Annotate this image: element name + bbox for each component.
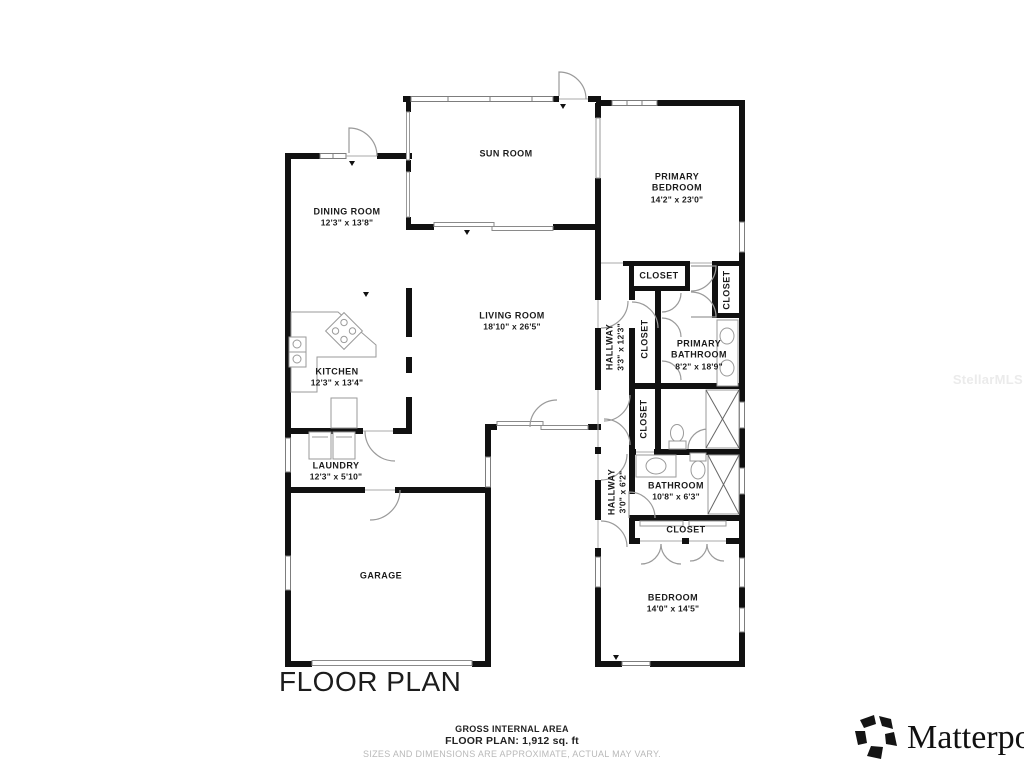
- matterport-wordmark: Matterport: [907, 719, 1024, 757]
- garage-entry-door-arc: [370, 490, 400, 520]
- dryer-icon: [333, 432, 355, 459]
- kitchen-island: [331, 398, 357, 428]
- page-title: FLOOR PLAN: [279, 666, 461, 698]
- toilet-icon: [690, 453, 706, 461]
- opening-lines: [346, 99, 726, 548]
- fixtures: [289, 312, 739, 526]
- walls: [285, 96, 745, 667]
- shower-door-arc: [688, 429, 708, 449]
- glass-walls: [407, 112, 601, 217]
- dining-door-arc: [349, 128, 377, 156]
- washer-icon: [309, 432, 331, 459]
- windows: [286, 97, 745, 666]
- sun-room-door-arc: [559, 72, 586, 99]
- matterport-logo: Matterport: [853, 713, 1024, 763]
- matterport-logo-icon: [853, 714, 901, 762]
- floor-plan-canvas: [0, 0, 1024, 768]
- laundry-door-arc: [365, 431, 395, 461]
- sink-icon: [720, 328, 734, 344]
- sink-icon: [720, 360, 734, 376]
- mls-watermark: StellarMLS: [953, 372, 1023, 387]
- toilet-icon: [671, 425, 684, 442]
- floor-plan-page: { "title": "FLOOR PLAN", "watermark": "S…: [0, 0, 1024, 768]
- sink-icon: [646, 458, 666, 474]
- bathroom-door-arc: [629, 492, 655, 518]
- door-ticks: [349, 104, 619, 660]
- garage-door: [312, 661, 472, 666]
